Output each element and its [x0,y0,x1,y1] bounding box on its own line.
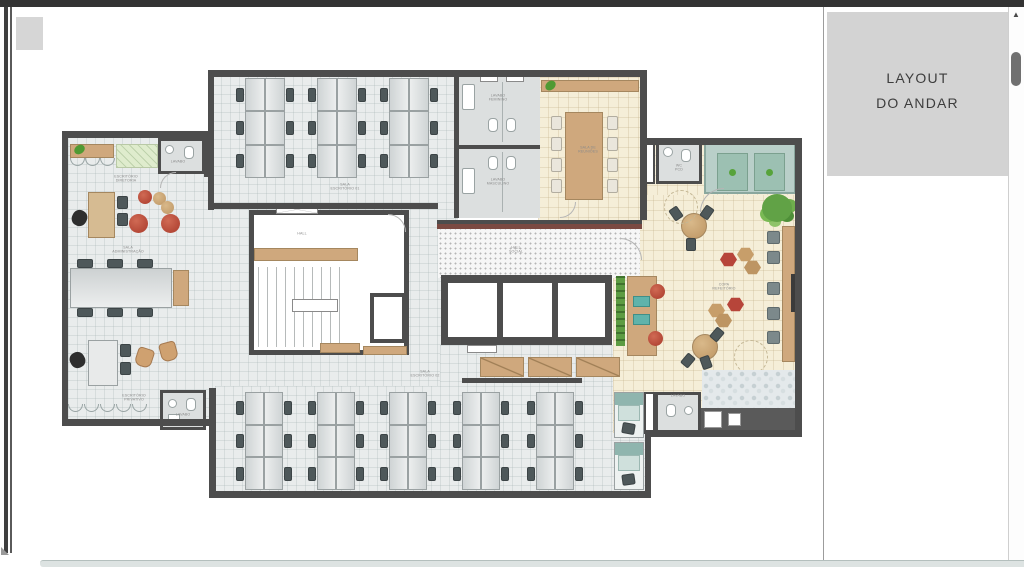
office-chair [380,121,388,135]
toilet [506,118,516,132]
wall [212,203,438,209]
desk-cluster [389,392,427,490]
lavabo-bottom-right [655,392,701,434]
stall-line [502,82,503,142]
desk [245,392,264,425]
floor-marking [734,340,768,374]
wall [209,491,651,498]
terrace-panel [717,153,748,191]
guest-chair [120,362,131,375]
office-chair [358,88,366,102]
desk [389,392,408,425]
desk [389,111,409,144]
office-chair [137,259,153,268]
office-chair [236,121,244,135]
hall-wood-band [254,248,358,261]
office-chair [284,434,292,448]
office-chair [236,88,244,102]
office-chair [308,467,316,481]
scrollbar-thumb[interactable] [1011,52,1021,86]
wall [62,419,210,426]
desk [481,392,500,425]
office-chair [284,401,292,415]
tree-plant [762,194,792,222]
scroll-up-icon[interactable]: ▲ [1012,10,1020,19]
desk [245,457,264,490]
desk [408,392,427,425]
sink [663,147,673,157]
meeting-table-top [565,112,603,200]
desk [317,78,337,111]
office-chair [428,434,436,448]
office-chair [107,259,123,268]
office-chair [430,154,438,168]
desk [389,425,408,458]
layout-title-line2: DO ANDAR [827,91,1008,116]
hall-finish-band [437,224,642,229]
office-chair [308,121,316,135]
room-label-lavabo-fem: LAVABOFEMININO [489,94,508,102]
meeting-chair [551,179,562,193]
stair-landing [292,299,338,312]
layout-title-box: LAYOUT DO ANDAR [827,12,1008,176]
desk [462,457,481,490]
desk-cluster [317,78,357,178]
viewer-window: SALAESCRITÓRIO 01 SALAESCRITÓRIO 02 SALA… [0,0,1024,567]
desk [317,111,337,144]
desk-cluster [245,392,283,490]
desk [389,457,408,490]
desk [317,145,337,178]
pouf [138,190,152,204]
stool [767,331,780,344]
wall [204,131,212,177]
office-chair [358,154,366,168]
desk [337,78,357,111]
lavabo-top-left [158,138,205,174]
resize-arrow-icon[interactable] [1,547,9,555]
horizontal-scrollbar[interactable] [40,560,1024,567]
office-chair [428,467,436,481]
layout-title-line1: LAYOUT [827,66,1008,91]
office-chair [380,434,388,448]
cafe-chair [686,238,696,251]
room-label-bottom-office: SALAESCRITÓRIO 02 [411,370,440,378]
left-window-edge [4,7,8,553]
booth-desk [618,405,640,421]
toilet [681,149,691,162]
conference-credenza [173,270,189,306]
locker-wall [462,378,582,383]
stool [767,307,780,320]
vertical-garden [616,276,625,346]
room-label-lavabo-masc: LAVABOMASCULINO [487,178,509,186]
desk [317,457,336,490]
guest-chair [117,196,128,209]
office-chair [236,401,244,415]
room-label-lavabo-tl: LAVABO [171,160,186,164]
desk [389,78,409,111]
sink [168,399,177,408]
office-chair [430,88,438,102]
office-chair [527,467,535,481]
wall-vent [467,345,497,353]
desk [265,145,285,178]
meeting-chair [551,116,562,130]
room-label-office-bl: ESCRITÓRIOPRIVATIVO [122,394,146,402]
office-chair [286,88,294,102]
meeting-credenza [541,80,639,92]
toilet [488,156,498,170]
office-chair [430,121,438,135]
desk [336,392,355,425]
wall [209,388,216,498]
desk [245,145,265,178]
stool [767,282,780,295]
meeting-chair [607,179,618,193]
elevator-shaft [558,283,605,337]
pouf [161,214,180,233]
locker-bench [576,357,620,377]
desk [555,425,574,458]
locker-bench [480,357,524,377]
desk [245,111,265,144]
office-chair [453,434,461,448]
room-label-admin: SALAADMINISTRAÇÃO [112,246,144,254]
deco-floor [702,370,796,409]
office-chair [356,434,364,448]
desk [409,111,429,144]
room-label-office-tl: ESCRITÓRIODIRETORIA [114,175,138,183]
office-chair [308,88,316,102]
desk [408,425,427,458]
room-label-wc-pcd: WCPCD [675,164,683,172]
office-chair [236,434,244,448]
toilet [666,404,676,417]
wall [645,138,800,145]
desk [265,111,285,144]
counter-appliance [633,314,650,325]
terrace-panel [754,153,785,191]
toilet [184,146,194,159]
sink [165,145,174,154]
locker-bench [528,357,572,377]
desk [536,457,555,490]
booth-panel [615,443,643,455]
office-chair [308,154,316,168]
office-chair [380,154,388,168]
wall [62,131,212,138]
vertical-scrollbar[interactable]: ▲ [1008,7,1024,560]
desk [481,425,500,458]
desk [336,457,355,490]
office-chair [428,401,436,415]
booth-desk [618,455,640,471]
office-chair [527,434,535,448]
wall [645,430,802,437]
left-panel-border [10,7,12,553]
exec-desk [88,192,115,238]
desk [264,425,283,458]
room-label-meeting: SALA DEREUNIÕES [578,146,598,154]
stool [767,231,780,244]
kitchen-sink [728,413,741,426]
desk [481,457,500,490]
guest-chair [117,213,128,226]
office-chair [107,308,123,317]
stool-red [648,331,663,346]
stool [767,251,780,264]
service-elevator [370,293,406,343]
elevator-shaft [448,283,497,337]
plant-icon [766,169,773,176]
office-chair [286,154,294,168]
desk [409,145,429,178]
desk [408,457,427,490]
booth-chair [621,473,635,486]
page-preview-box[interactable] [16,17,43,50]
plant-icon [729,169,736,176]
office-chair [453,401,461,415]
desk [317,392,336,425]
office-chair [501,467,509,481]
desk [555,392,574,425]
meeting-chair [551,137,562,151]
meeting-chair [607,158,618,172]
office-chair [501,401,509,415]
desk [337,111,357,144]
wall [210,70,644,77]
wc-pcd [656,140,702,184]
desk [264,392,283,425]
floor-marking [664,190,698,224]
sink [684,406,693,415]
toilet [186,398,196,411]
elevator-shaft [503,283,552,337]
wall [645,434,651,496]
terrace [704,142,796,194]
desk [265,78,285,111]
office-desk [88,340,118,386]
office-chair [501,434,509,448]
desk-cluster [317,392,355,490]
desk [462,425,481,458]
sofa [116,144,158,168]
desk [245,78,265,111]
desk [462,392,481,425]
wall [795,138,802,435]
room-label-hall-social: HALLSOCIAL [509,246,523,254]
counter-appliance [633,296,650,307]
top-bar [0,0,1024,7]
office-chair [137,308,153,317]
pouf [161,201,174,214]
wall [640,70,647,220]
office-chair [236,154,244,168]
office-chair [358,121,366,135]
guest-chair [120,344,131,357]
desk [536,392,555,425]
desk [245,425,264,458]
core-cabinet [320,343,360,353]
desk [536,425,555,458]
meeting-chair [607,116,618,130]
desk-cluster [536,392,574,490]
office-chair [77,308,93,317]
office-chair [356,401,364,415]
kitchen-appliance [704,411,722,428]
office-chair [236,467,244,481]
desk [317,425,336,458]
office-chair [575,434,583,448]
elevator-bank [441,275,612,345]
desk-cluster [245,78,285,178]
office-chair [284,467,292,481]
meeting-chair [607,137,618,151]
restroom-divider [458,145,540,149]
room-label-copa: COPAREFEITÓRIO [712,283,735,291]
office-chair [356,467,364,481]
hall-social-floor [438,226,640,278]
wall [62,131,68,426]
desk-cluster [462,392,500,490]
desk [555,457,574,490]
office-chair [453,467,461,481]
office-chair [380,88,388,102]
hall-top-wall [437,220,642,224]
stool-red [650,284,665,299]
pouf [129,214,148,233]
office-chair [308,401,316,415]
room-label-top-office: SALAESCRITÓRIO 01 [331,183,360,191]
focus-booth [614,442,644,490]
sink-counter [462,84,475,110]
core-cabinet [363,346,407,355]
office-chair [575,401,583,415]
office-chair [77,259,93,268]
booth-chair [621,422,636,435]
room-label-hall-core: HALL [297,232,306,236]
focus-booth [614,392,644,438]
meeting-chair [551,158,562,172]
office-chair [575,467,583,481]
booth-panel [615,393,643,405]
closet [644,392,655,434]
desk [409,78,429,111]
office-chair [308,434,316,448]
room-label-lavabo-bl: LAVABO [176,413,191,417]
toilet [506,156,516,170]
sink-counter [462,168,475,194]
office-chair [380,401,388,415]
office-chair [286,121,294,135]
office-chair [380,467,388,481]
desk [336,425,355,458]
room-label-lavabo-br: LAVABO [671,394,686,398]
conference-table [70,268,172,308]
desk-cluster [389,78,429,178]
desk [337,145,357,178]
toilet [488,118,498,132]
desk [389,145,409,178]
office-chair [527,401,535,415]
desk [264,457,283,490]
